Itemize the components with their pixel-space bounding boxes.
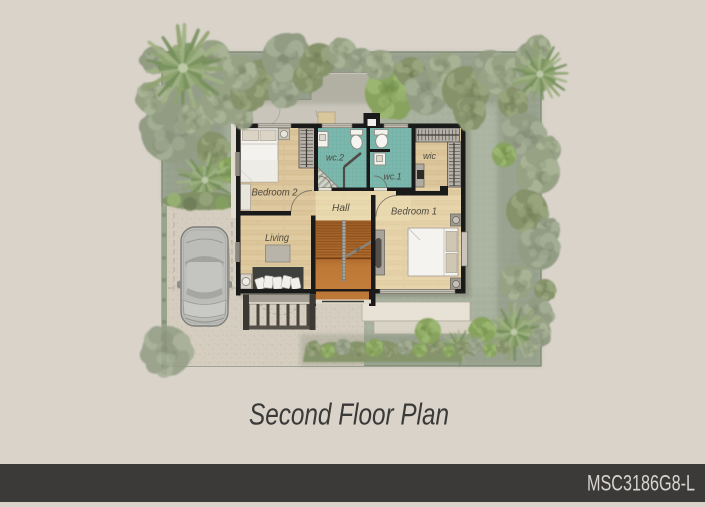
svg-text:Bedroom 1: Bedroom 1	[391, 206, 437, 218]
svg-text:Living: Living	[265, 232, 289, 244]
svg-text:Second Floor Plan: Second Floor Plan	[249, 397, 449, 432]
svg-text:wc.1: wc.1	[384, 172, 402, 183]
svg-text:MSC3186G8-L: MSC3186G8-L	[587, 471, 695, 496]
svg-text:wc.2: wc.2	[326, 153, 345, 164]
svg-text:wic: wic	[423, 151, 436, 162]
svg-text:Bedroom 2: Bedroom 2	[252, 187, 298, 199]
svg-text:Hall: Hall	[332, 202, 350, 214]
